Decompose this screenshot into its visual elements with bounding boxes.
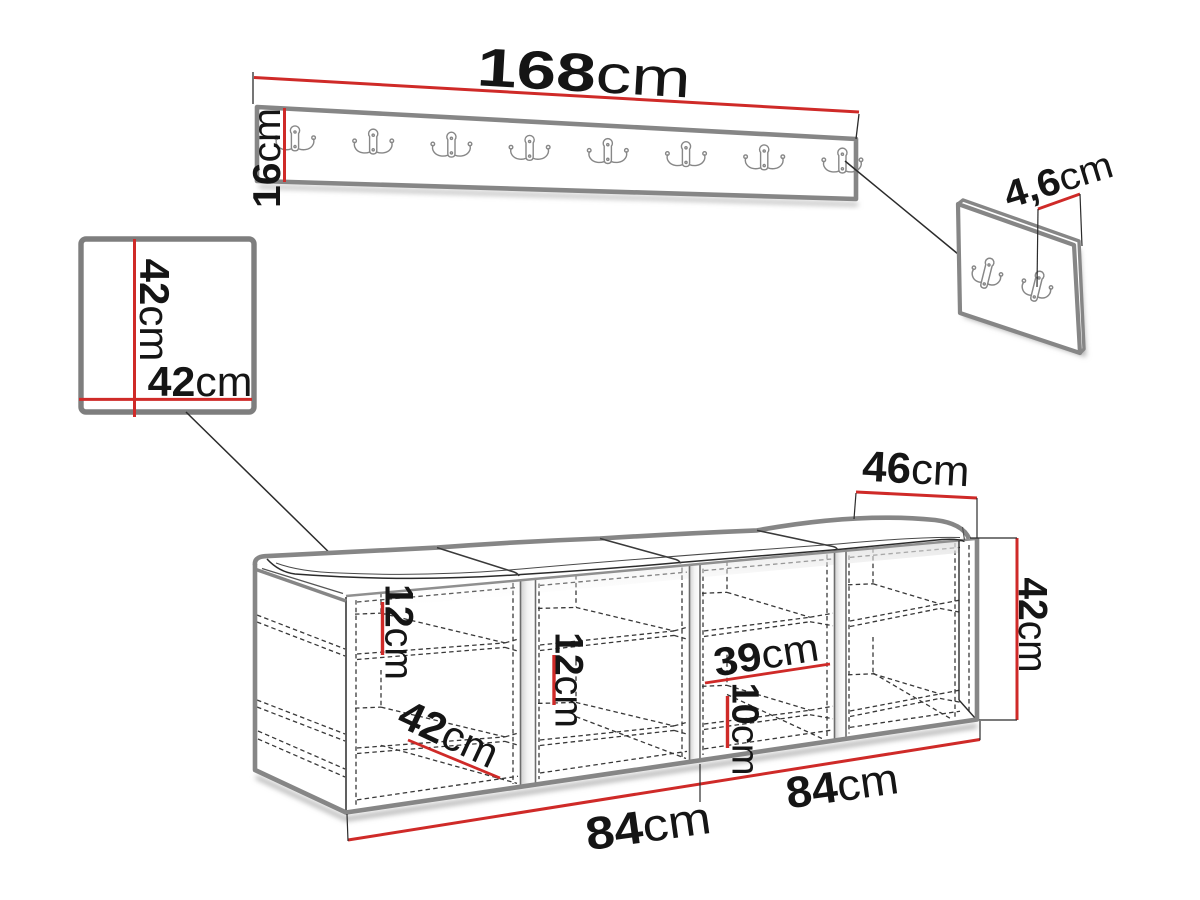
svg-text:12cm: 12cm (377, 584, 421, 680)
svg-text:12cm: 12cm (547, 632, 591, 728)
svg-text:42cm: 42cm (131, 259, 178, 362)
svg-text:168cm: 168cm (475, 37, 692, 109)
svg-text:42cm: 42cm (1010, 577, 1055, 672)
svg-text:10cm: 10cm (723, 683, 765, 776)
svg-text:16cm: 16cm (246, 108, 289, 208)
svg-text:42cm: 42cm (148, 358, 253, 405)
svg-text:46cm: 46cm (861, 443, 971, 496)
